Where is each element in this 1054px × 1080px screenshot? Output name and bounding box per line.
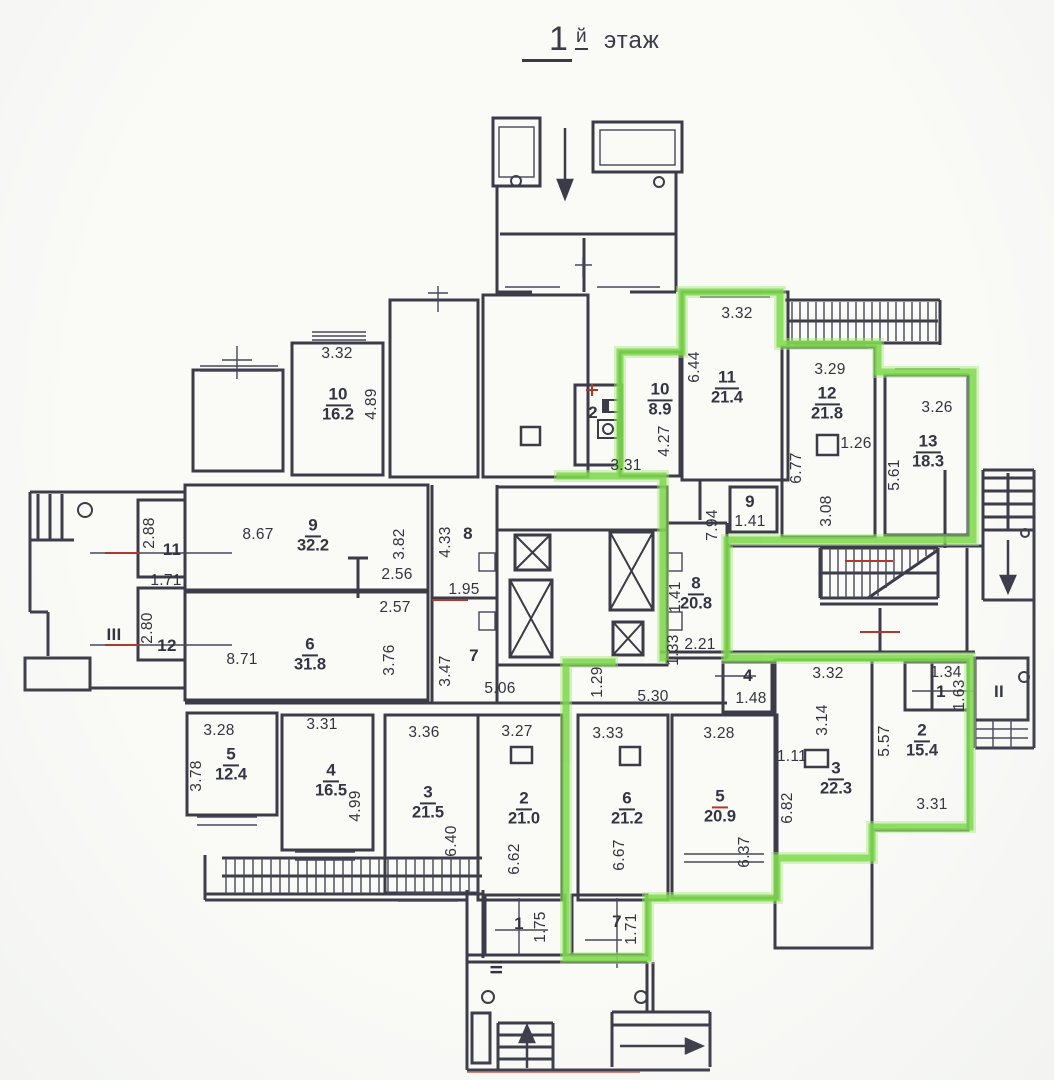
dimension-label: 5.61 — [886, 459, 904, 490]
dimension-label: 3.28 — [703, 725, 734, 743]
room-number: 11 — [715, 368, 739, 389]
wc-cistern-mark — [603, 400, 609, 412]
dimension-label: 2.80 — [139, 612, 157, 643]
room-number: 3 — [420, 783, 435, 804]
room-number-label: 8 — [463, 524, 473, 544]
room-area: 21.4 — [711, 390, 743, 408]
room-number-label: 4 — [743, 666, 753, 686]
room-number-label: 1 — [936, 682, 946, 702]
dimension-label: 1.48 — [735, 690, 766, 708]
dimension-label: 6.44 — [686, 351, 704, 382]
room-area: 32.2 — [297, 538, 329, 556]
room-area-label: 1318.3 — [912, 432, 944, 471]
room-number-label: 9 — [745, 492, 755, 512]
dimension-label: 1.29 — [589, 666, 607, 697]
dimension-label: 3.27 — [501, 723, 532, 741]
dimension-label: 4.99 — [347, 790, 365, 821]
room-number-label: II — [994, 682, 1004, 702]
dimension-label: 3.08 — [818, 495, 836, 526]
floorplan-scan-page: 1 й этаж — [0, 0, 1054, 1080]
dimension-label: 1.71 — [623, 913, 641, 944]
room-area: 21.5 — [412, 805, 444, 823]
room-area: 31.8 — [294, 657, 326, 675]
room-number: 6 — [302, 635, 317, 656]
room-area: 12.4 — [215, 767, 247, 785]
room-area: 22.3 — [820, 781, 852, 799]
dimension-label: 3.33 — [592, 725, 623, 743]
room-number-label: 11 — [163, 540, 182, 560]
dimension-label: 8.71 — [226, 651, 257, 669]
dimension-label: 6.77 — [788, 452, 806, 483]
room-number-label: 2 — [588, 403, 598, 423]
room-area: 21.8 — [811, 406, 843, 424]
room-number: 3 — [828, 759, 843, 780]
room-number: 2 — [914, 721, 929, 742]
dimension-label: 5.06 — [484, 680, 515, 698]
dimension-label: 1.63 — [951, 679, 969, 710]
room-area-label: 520.9 — [704, 787, 736, 826]
dimension-label: 1.75 — [532, 911, 550, 942]
room-area-label: 416.5 — [315, 761, 347, 800]
dimension-label: 2.56 — [381, 566, 412, 584]
dimension-label: 7.94 — [704, 509, 722, 540]
room-area: 20.9 — [704, 809, 736, 827]
dimension-label: 3.32 — [721, 305, 752, 323]
dimension-label: 4.33 — [437, 526, 455, 557]
room-area: 8.9 — [648, 402, 673, 420]
dimension-label: 6.67 — [611, 839, 629, 870]
room-area-label: 215.4 — [906, 721, 938, 760]
dimension-label: 3.76 — [381, 644, 399, 675]
room-area-label: 321.5 — [412, 783, 444, 822]
dimension-label: 3.31 — [916, 796, 947, 814]
dimension-label: 3.36 — [408, 724, 439, 742]
room-area-label: 1121.4 — [711, 368, 743, 407]
dimension-label: 3.31 — [610, 457, 641, 475]
room-number-label: 7 — [469, 646, 479, 666]
walls-layer — [25, 118, 1034, 1071]
dimension-label: 3.31 — [306, 716, 337, 734]
room-area: 18.3 — [912, 454, 944, 472]
room-number: 8 — [688, 574, 703, 595]
dimension-label: 3.32 — [321, 345, 352, 363]
dimension-label: 6.40 — [443, 825, 461, 856]
room-area: 20.8 — [680, 596, 712, 614]
dimension-label: 5.57 — [876, 725, 894, 756]
dimension-label: 1.26 — [840, 435, 871, 453]
dimension-label: 3.47 — [437, 655, 455, 686]
dimension-label: 2.21 — [684, 636, 715, 654]
direction-arrows — [520, 128, 1015, 1068]
room-number-label: III — [106, 625, 121, 645]
dimension-label: 6.82 — [779, 792, 797, 823]
room-area-label: 512.4 — [215, 745, 247, 784]
room-number: 10 — [326, 385, 351, 406]
dimension-label: 3.26 — [921, 399, 952, 417]
dimension-label: 1.71 — [150, 572, 181, 590]
dimension-label: 1.95 — [448, 581, 479, 599]
dimension-label: 5.30 — [637, 688, 668, 706]
room-number: 5 — [712, 787, 727, 808]
room-area: 21.2 — [611, 811, 643, 829]
room-area-label: 932.2 — [297, 516, 329, 555]
dimension-label: 3.78 — [188, 760, 206, 791]
room-number-label: 12 — [157, 636, 177, 656]
room-number: 13 — [916, 432, 941, 453]
room-area-label: 221.0 — [508, 789, 540, 828]
dimension-label: 1.33 — [665, 634, 683, 665]
dimension-label: 2.88 — [141, 517, 159, 548]
room-number: 9 — [305, 516, 320, 537]
room-area: 16.5 — [315, 783, 347, 801]
dimension-label: 1.41 — [734, 513, 765, 531]
room-number: 5 — [223, 745, 238, 766]
room-area-label: 621.2 — [611, 789, 643, 828]
dimension-label: 3.28 — [203, 722, 234, 740]
elevator-shaft-x-marks — [510, 532, 653, 657]
room-area: 15.4 — [906, 743, 938, 761]
dimension-label: 4.27 — [656, 425, 674, 456]
room-number: 10 — [648, 380, 673, 401]
dimension-label: 3.82 — [391, 528, 409, 559]
room-number-label: 7 — [612, 912, 622, 932]
room-area-label: 820.8 — [680, 574, 712, 613]
room-area-label: 108.9 — [648, 380, 673, 419]
dimension-label: 6.37 — [736, 836, 754, 867]
dimension-label: 3.32 — [812, 665, 843, 683]
dimension-label: 3.14 — [814, 704, 832, 735]
room-area-label: 1221.8 — [811, 384, 843, 423]
room-number: 6 — [619, 789, 634, 810]
dimension-label: 4.89 — [363, 388, 381, 419]
dimension-label: 8.67 — [242, 526, 273, 544]
dimension-label: 3.29 — [814, 361, 845, 379]
room-number-label: III — [487, 959, 507, 974]
room-area: 21.0 — [508, 811, 540, 829]
room-number: 2 — [516, 789, 531, 810]
room-area: 16.2 — [322, 407, 354, 425]
room-area-label: 322.3 — [820, 759, 852, 798]
room-number: 4 — [323, 761, 338, 782]
dimension-label: 6.62 — [506, 843, 524, 874]
room-number: 12 — [815, 384, 840, 405]
dimension-label: 2.57 — [379, 599, 410, 617]
room-area-label: 631.8 — [294, 635, 326, 674]
room-area-label: 1016.2 — [322, 385, 354, 424]
room-number-label: 1 — [514, 914, 524, 934]
dimension-label: 1.11 — [777, 748, 807, 766]
